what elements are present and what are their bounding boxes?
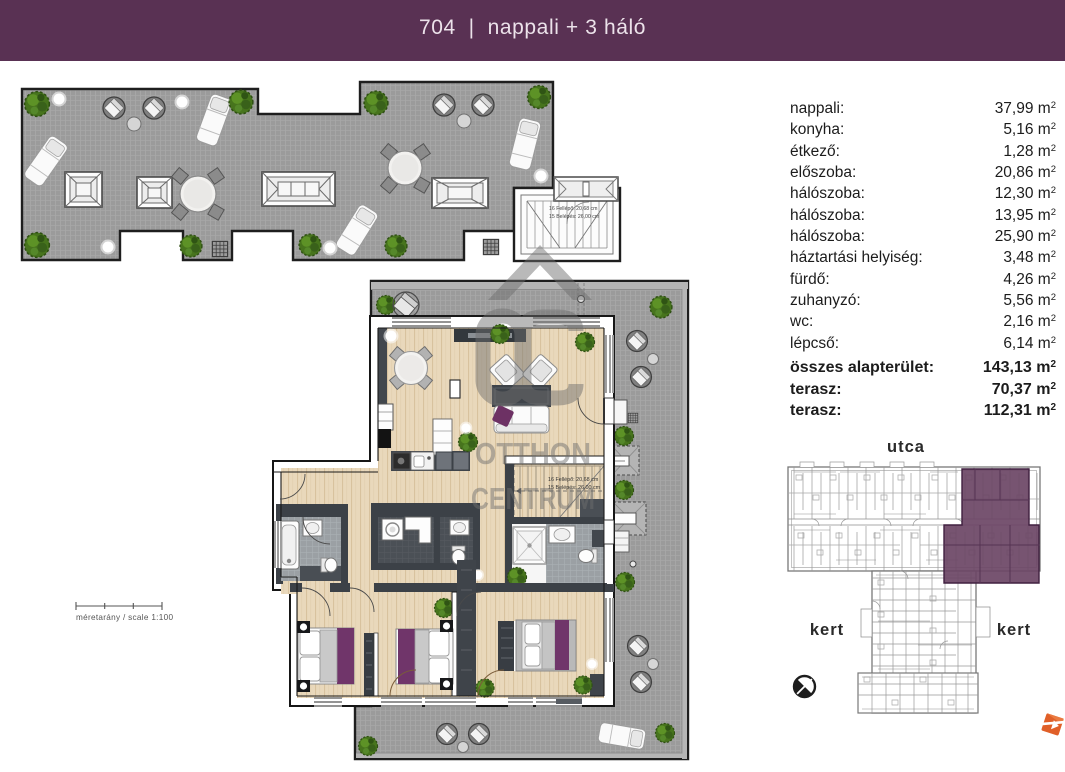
svg-text:kert: kert (810, 621, 844, 639)
svg-text:konyha:: konyha: (790, 121, 844, 138)
svg-text:13,95 m2: 13,95 m2 (995, 207, 1056, 224)
svg-text:1,28 m2: 1,28 m2 (1003, 143, 1056, 160)
svg-text:hálószoba:: hálószoba: (790, 207, 865, 224)
svg-text:összes alapterület:: összes alapterület: (790, 359, 934, 376)
svg-text:nappali:: nappali: (790, 100, 844, 117)
svg-text:70,37 m2: 70,37 m2 (992, 381, 1057, 398)
svg-text:2,16 m2: 2,16 m2 (1003, 313, 1056, 330)
svg-text:előszoba:: előszoba: (790, 164, 856, 181)
svg-text:5,56 m2: 5,56 m2 (1003, 292, 1056, 309)
svg-text:utca: utca (887, 438, 925, 456)
svg-text:25,90 m2: 25,90 m2 (995, 228, 1056, 245)
svg-text:fürdő:: fürdő: (790, 271, 830, 288)
svg-text:15 Belépés: 26,00 cm: 15 Belépés: 26,00 cm (549, 214, 599, 220)
svg-text:lépcső:: lépcső: (790, 335, 839, 352)
svg-text:hálószoba:: hálószoba: (790, 228, 865, 245)
svg-text:kert: kert (997, 621, 1031, 639)
svg-text:37,99 m2: 37,99 m2 (995, 100, 1056, 117)
svg-text:16 Fellépő: 20,68 cm: 16 Fellépő: 20,68 cm (549, 206, 597, 212)
svg-text:terasz:: terasz: (790, 402, 842, 419)
svg-text:OTTHON: OTTHON (475, 436, 591, 471)
svg-text:wc:: wc: (789, 313, 813, 330)
svg-text:12,30 m2: 12,30 m2 (995, 185, 1056, 202)
svg-text:zuhanyzó:: zuhanyzó: (790, 292, 861, 309)
svg-text:háztartási helyiség:: háztartási helyiség: (790, 249, 923, 266)
svg-text:CENTRUM: CENTRUM (471, 481, 595, 516)
svg-text:hálószoba:: hálószoba: (790, 185, 865, 202)
svg-text:5,16 m2: 5,16 m2 (1003, 121, 1056, 138)
svg-text:méretarány / scale 1:100: méretarány / scale 1:100 (76, 613, 173, 622)
svg-text:terasz:: terasz: (790, 381, 842, 398)
svg-text:20,86 m2: 20,86 m2 (995, 164, 1056, 181)
svg-text:3,48 m2: 3,48 m2 (1003, 249, 1056, 266)
svg-text:étkező:: étkező: (790, 143, 840, 160)
svg-text:143,13 m2: 143,13 m2 (983, 359, 1057, 376)
svg-text:4,26 m2: 4,26 m2 (1003, 271, 1056, 288)
svg-text:112,31 m2: 112,31 m2 (984, 402, 1057, 419)
svg-text:6,14 m2: 6,14 m2 (1003, 335, 1056, 352)
